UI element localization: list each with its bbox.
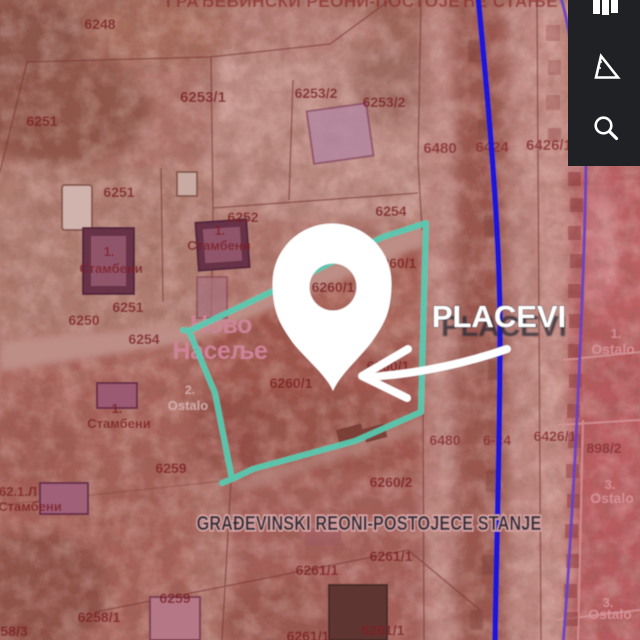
- svg-text:6251: 6251: [103, 184, 134, 200]
- svg-text:6254: 6254: [128, 331, 159, 347]
- svg-text:6253/2: 6253/2: [363, 94, 406, 110]
- svg-text:6260/1: 6260/1: [270, 375, 313, 391]
- svg-text:1.: 1.: [611, 326, 622, 341]
- svg-text:6253/2: 6253/2: [295, 85, 338, 101]
- svg-text:6426/1: 6426/1: [526, 137, 572, 154]
- svg-text:58/3: 58/3: [0, 623, 27, 639]
- svg-text:Стамбени: Стамбени: [79, 261, 143, 276]
- svg-text:6260/1: 6260/1: [312, 279, 355, 295]
- svg-text:Стамбени: Стамбени: [187, 238, 251, 253]
- svg-text:6253/1: 6253/1: [180, 89, 226, 106]
- svg-text:6261/1: 6261/1: [370, 548, 413, 564]
- svg-text:6251: 6251: [112, 299, 143, 315]
- svg-text:6248: 6248: [84, 16, 115, 32]
- svg-text:ГРАЂЕВИНСКИ РЕОНИ-ПОСТОЈЕЋЕ СТ: ГРАЂЕВИНСКИ РЕОНИ-ПОСТОЈЕЋЕ СТАЊЕ: [166, 0, 558, 11]
- svg-text:Ostalo: Ostalo: [590, 490, 634, 506]
- svg-text:Стамбени: Стамбени: [87, 416, 151, 431]
- svg-text:6426/1: 6426/1: [534, 428, 577, 444]
- svg-text:6480: 6480: [423, 140, 456, 157]
- svg-text:Ostalo: Ostalo: [588, 606, 632, 622]
- svg-text:Ostalo: Ostalo: [591, 341, 635, 357]
- svg-text:Ostalo: Ostalo: [168, 398, 209, 413]
- svg-text:6252: 6252: [227, 209, 258, 225]
- svg-text:62.1.Л: 62.1.Л: [0, 484, 37, 499]
- svg-text:1.: 1.: [215, 223, 226, 238]
- svg-text:6259: 6259: [155, 460, 186, 476]
- svg-text:Насеље: Насеље: [173, 337, 268, 365]
- svg-text:6261/1: 6261/1: [296, 562, 339, 578]
- svg-text:GRAĐEVINSKI REONI-POSTOJECE ST: GRAĐEVINSKI REONI-POSTOJECE STANJE: [197, 511, 542, 534]
- svg-text:2.: 2.: [185, 383, 195, 397]
- svg-text:1.: 1.: [104, 244, 115, 259]
- svg-text:6250: 6250: [68, 312, 99, 328]
- svg-text:6258/1: 6258/1: [78, 609, 121, 625]
- svg-text:6259: 6259: [159, 590, 190, 606]
- svg-text:6480: 6480: [429, 432, 460, 448]
- svg-text:6261/1: 6261/1: [287, 628, 330, 640]
- svg-text:6261/1: 6261/1: [362, 622, 405, 638]
- svg-text:1.: 1.: [112, 401, 123, 416]
- svg-text:898/2: 898/2: [586, 440, 621, 456]
- svg-text:PLACEVI: PLACEVI: [432, 299, 566, 334]
- svg-text:6254: 6254: [375, 203, 406, 219]
- svg-text:Стамбени: Стамбени: [0, 499, 62, 514]
- svg-text:6260/2: 6260/2: [370, 474, 413, 490]
- svg-text:6251: 6251: [26, 113, 57, 129]
